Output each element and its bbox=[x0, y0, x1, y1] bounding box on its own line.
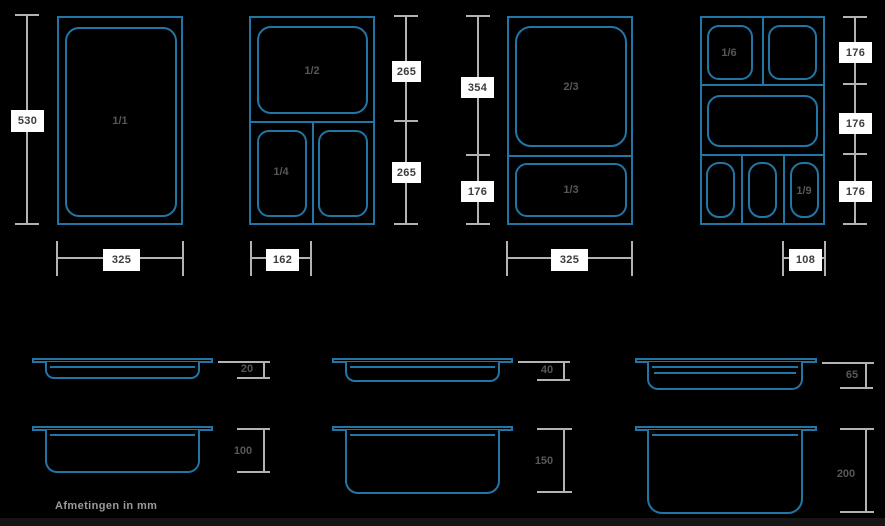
pan-body bbox=[345, 430, 500, 494]
dimension-line-depth-40 bbox=[563, 361, 565, 380]
dimension-tick bbox=[394, 120, 418, 122]
pan-lip bbox=[350, 366, 495, 368]
gn-1-6-divider bbox=[762, 16, 764, 86]
footer-bar bbox=[0, 518, 885, 526]
pan-lip bbox=[350, 434, 495, 436]
dimension-tick bbox=[840, 428, 874, 430]
pan-lip bbox=[50, 434, 195, 436]
gn-1-4-label: 1/4 bbox=[261, 162, 301, 182]
gastronorm-dimensions-diagram: 530 1/1 325 1/2 1/4 265 265 162 35 bbox=[0, 0, 885, 526]
dimension-tick bbox=[15, 14, 39, 16]
dimension-line-depth-100 bbox=[263, 429, 265, 473]
row-divider-2 bbox=[700, 154, 825, 156]
pan-lip bbox=[652, 366, 798, 368]
units-caption: Afmetingen in mm bbox=[55, 500, 157, 512]
dimension-tick bbox=[840, 511, 874, 513]
gn-1-2-label: 1/2 bbox=[292, 61, 332, 81]
pan-body bbox=[647, 430, 803, 514]
pan-lip bbox=[50, 366, 195, 368]
dimension-line-depth-200 bbox=[865, 429, 867, 513]
dimension-tick bbox=[237, 377, 270, 379]
gn-1-3-cavity-middle bbox=[707, 95, 818, 147]
dimension-tick bbox=[843, 83, 867, 85]
dimension-tick bbox=[466, 154, 490, 156]
gn-1-6-label: 1/6 bbox=[709, 43, 749, 63]
gn-2-3-divider bbox=[507, 155, 633, 157]
dimension-label-176-row3: 176 bbox=[839, 181, 872, 202]
depth-label-20: 20 bbox=[235, 362, 259, 376]
dimension-label-325: 325 bbox=[551, 249, 588, 271]
pan-body bbox=[45, 430, 200, 473]
dimension-line-depth-20 bbox=[263, 361, 265, 378]
dimension-line-depth-150 bbox=[563, 429, 565, 493]
dimension-tick bbox=[843, 153, 867, 155]
dimension-label-176: 176 bbox=[461, 181, 494, 202]
dimension-label-108: 108 bbox=[789, 249, 822, 271]
dimension-label-325: 325 bbox=[103, 249, 140, 271]
dimension-label-162: 162 bbox=[266, 249, 299, 271]
pan-lip bbox=[652, 434, 798, 436]
gn-1-4-cavity-right bbox=[318, 130, 368, 217]
dimension-label-530: 530 bbox=[11, 110, 44, 132]
pan-body bbox=[345, 362, 500, 382]
gn-1-6-cavity-right bbox=[768, 25, 817, 80]
dimension-tick bbox=[537, 491, 572, 493]
pan-body bbox=[45, 362, 200, 379]
dimension-tick bbox=[843, 16, 867, 18]
dimension-tick bbox=[237, 428, 270, 430]
gn-1-9-cavity-2 bbox=[748, 162, 777, 218]
dimension-label-265-top: 265 bbox=[392, 61, 421, 82]
depth-label-40: 40 bbox=[535, 363, 559, 377]
dimension-label-176-row1: 176 bbox=[839, 42, 872, 63]
dimension-tick bbox=[394, 223, 418, 225]
gn-1-9-divider-1 bbox=[741, 154, 743, 225]
depth-label-200: 200 bbox=[830, 467, 862, 481]
dimension-tick bbox=[466, 15, 490, 17]
dimension-tick bbox=[15, 223, 39, 225]
dimension-tick bbox=[537, 428, 572, 430]
gn-1-3-label: 1/3 bbox=[551, 180, 591, 200]
dimension-label-176-row2: 176 bbox=[839, 113, 872, 134]
dimension-line-depth-65 bbox=[865, 362, 867, 389]
gn-1-9-cavity-1 bbox=[706, 162, 735, 218]
depth-label-65: 65 bbox=[840, 368, 864, 382]
dimension-label-265-bottom: 265 bbox=[392, 162, 421, 183]
dimension-tick bbox=[537, 379, 570, 381]
gn-1-9-label: 1/9 bbox=[784, 181, 824, 201]
dimension-tick bbox=[394, 15, 418, 17]
dimension-label-354: 354 bbox=[461, 77, 494, 98]
dimension-tick bbox=[466, 223, 490, 225]
gn-2-3-label: 2/3 bbox=[551, 77, 591, 97]
pan-lip bbox=[654, 372, 796, 374]
dimension-tick bbox=[840, 387, 873, 389]
dimension-tick bbox=[843, 223, 867, 225]
depth-label-100: 100 bbox=[227, 444, 259, 458]
gn-1-4-divider bbox=[312, 121, 314, 225]
gn-1-1-label: 1/1 bbox=[100, 111, 140, 131]
dimension-tick bbox=[237, 471, 270, 473]
depth-label-150: 150 bbox=[528, 454, 560, 468]
